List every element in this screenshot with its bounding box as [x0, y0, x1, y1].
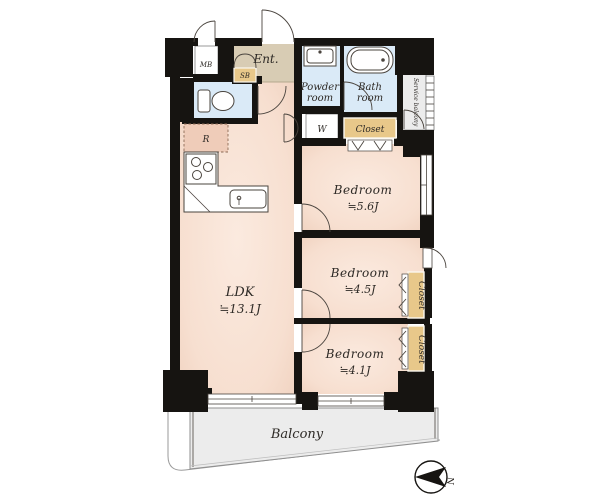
shoe-box-label: SB — [240, 72, 250, 80]
closet-small: Closet — [399, 326, 426, 371]
service-balcony-label: Service balcony — [412, 78, 419, 127]
compass-north-label: N — [444, 476, 454, 486]
entrance-label: Ent. — [252, 52, 278, 66]
bath-room-label-1: Bath — [357, 82, 382, 93]
window-ldk — [208, 394, 296, 404]
closet-mid-label: Closet — [416, 281, 426, 310]
floor-plan-canvas: Balcony Service balcony — [0, 0, 600, 501]
door-exterior-bedroom-mid — [423, 248, 446, 268]
service-balcony: Service balcony — [401, 74, 434, 130]
balcony-label: Balcony — [270, 427, 324, 442]
closet-top: Closet — [344, 118, 396, 151]
closet-small-label: Closet — [416, 335, 426, 364]
refrigerator-space: R — [184, 124, 228, 152]
closet-mid: Closet — [399, 272, 426, 318]
toilet — [198, 90, 234, 112]
bedroom-mid-label: Bedroom — [330, 266, 390, 280]
washbasin — [304, 46, 336, 66]
bathtub — [347, 47, 393, 73]
ldk-label: LDK — [225, 285, 256, 300]
powder-room-label-2: room — [307, 93, 333, 104]
window-bedroom-small — [318, 396, 384, 406]
closet-top-label: Closet — [356, 125, 385, 135]
bedroom-mid-size: ≒4.5J — [344, 283, 376, 296]
balcony: Balcony — [168, 408, 440, 470]
washer-label: W — [317, 125, 327, 135]
kitchen-sink — [230, 190, 266, 208]
bath-room-label-2: room — [357, 93, 383, 104]
window-bedroom-main — [421, 155, 432, 215]
bedroom-small-size: ≒4.1J — [339, 364, 371, 377]
balcony-rail — [426, 76, 434, 130]
bedroom-small-label: Bedroom — [325, 347, 385, 361]
stove — [186, 154, 216, 184]
bedroom-main-label: Bedroom — [333, 183, 393, 197]
bedroom-main-size: ≒5.6J — [347, 200, 379, 213]
powder-room-label-1: Powder — [300, 82, 340, 93]
refrigerator-label: R — [202, 135, 210, 145]
compass-icon: N — [415, 461, 454, 493]
ldk-size: ≒13.1J — [219, 302, 262, 316]
floor-plan: Balcony Service balcony — [0, 0, 600, 501]
meter-box-label: MB — [199, 61, 212, 69]
entrance-door — [262, 10, 294, 42]
